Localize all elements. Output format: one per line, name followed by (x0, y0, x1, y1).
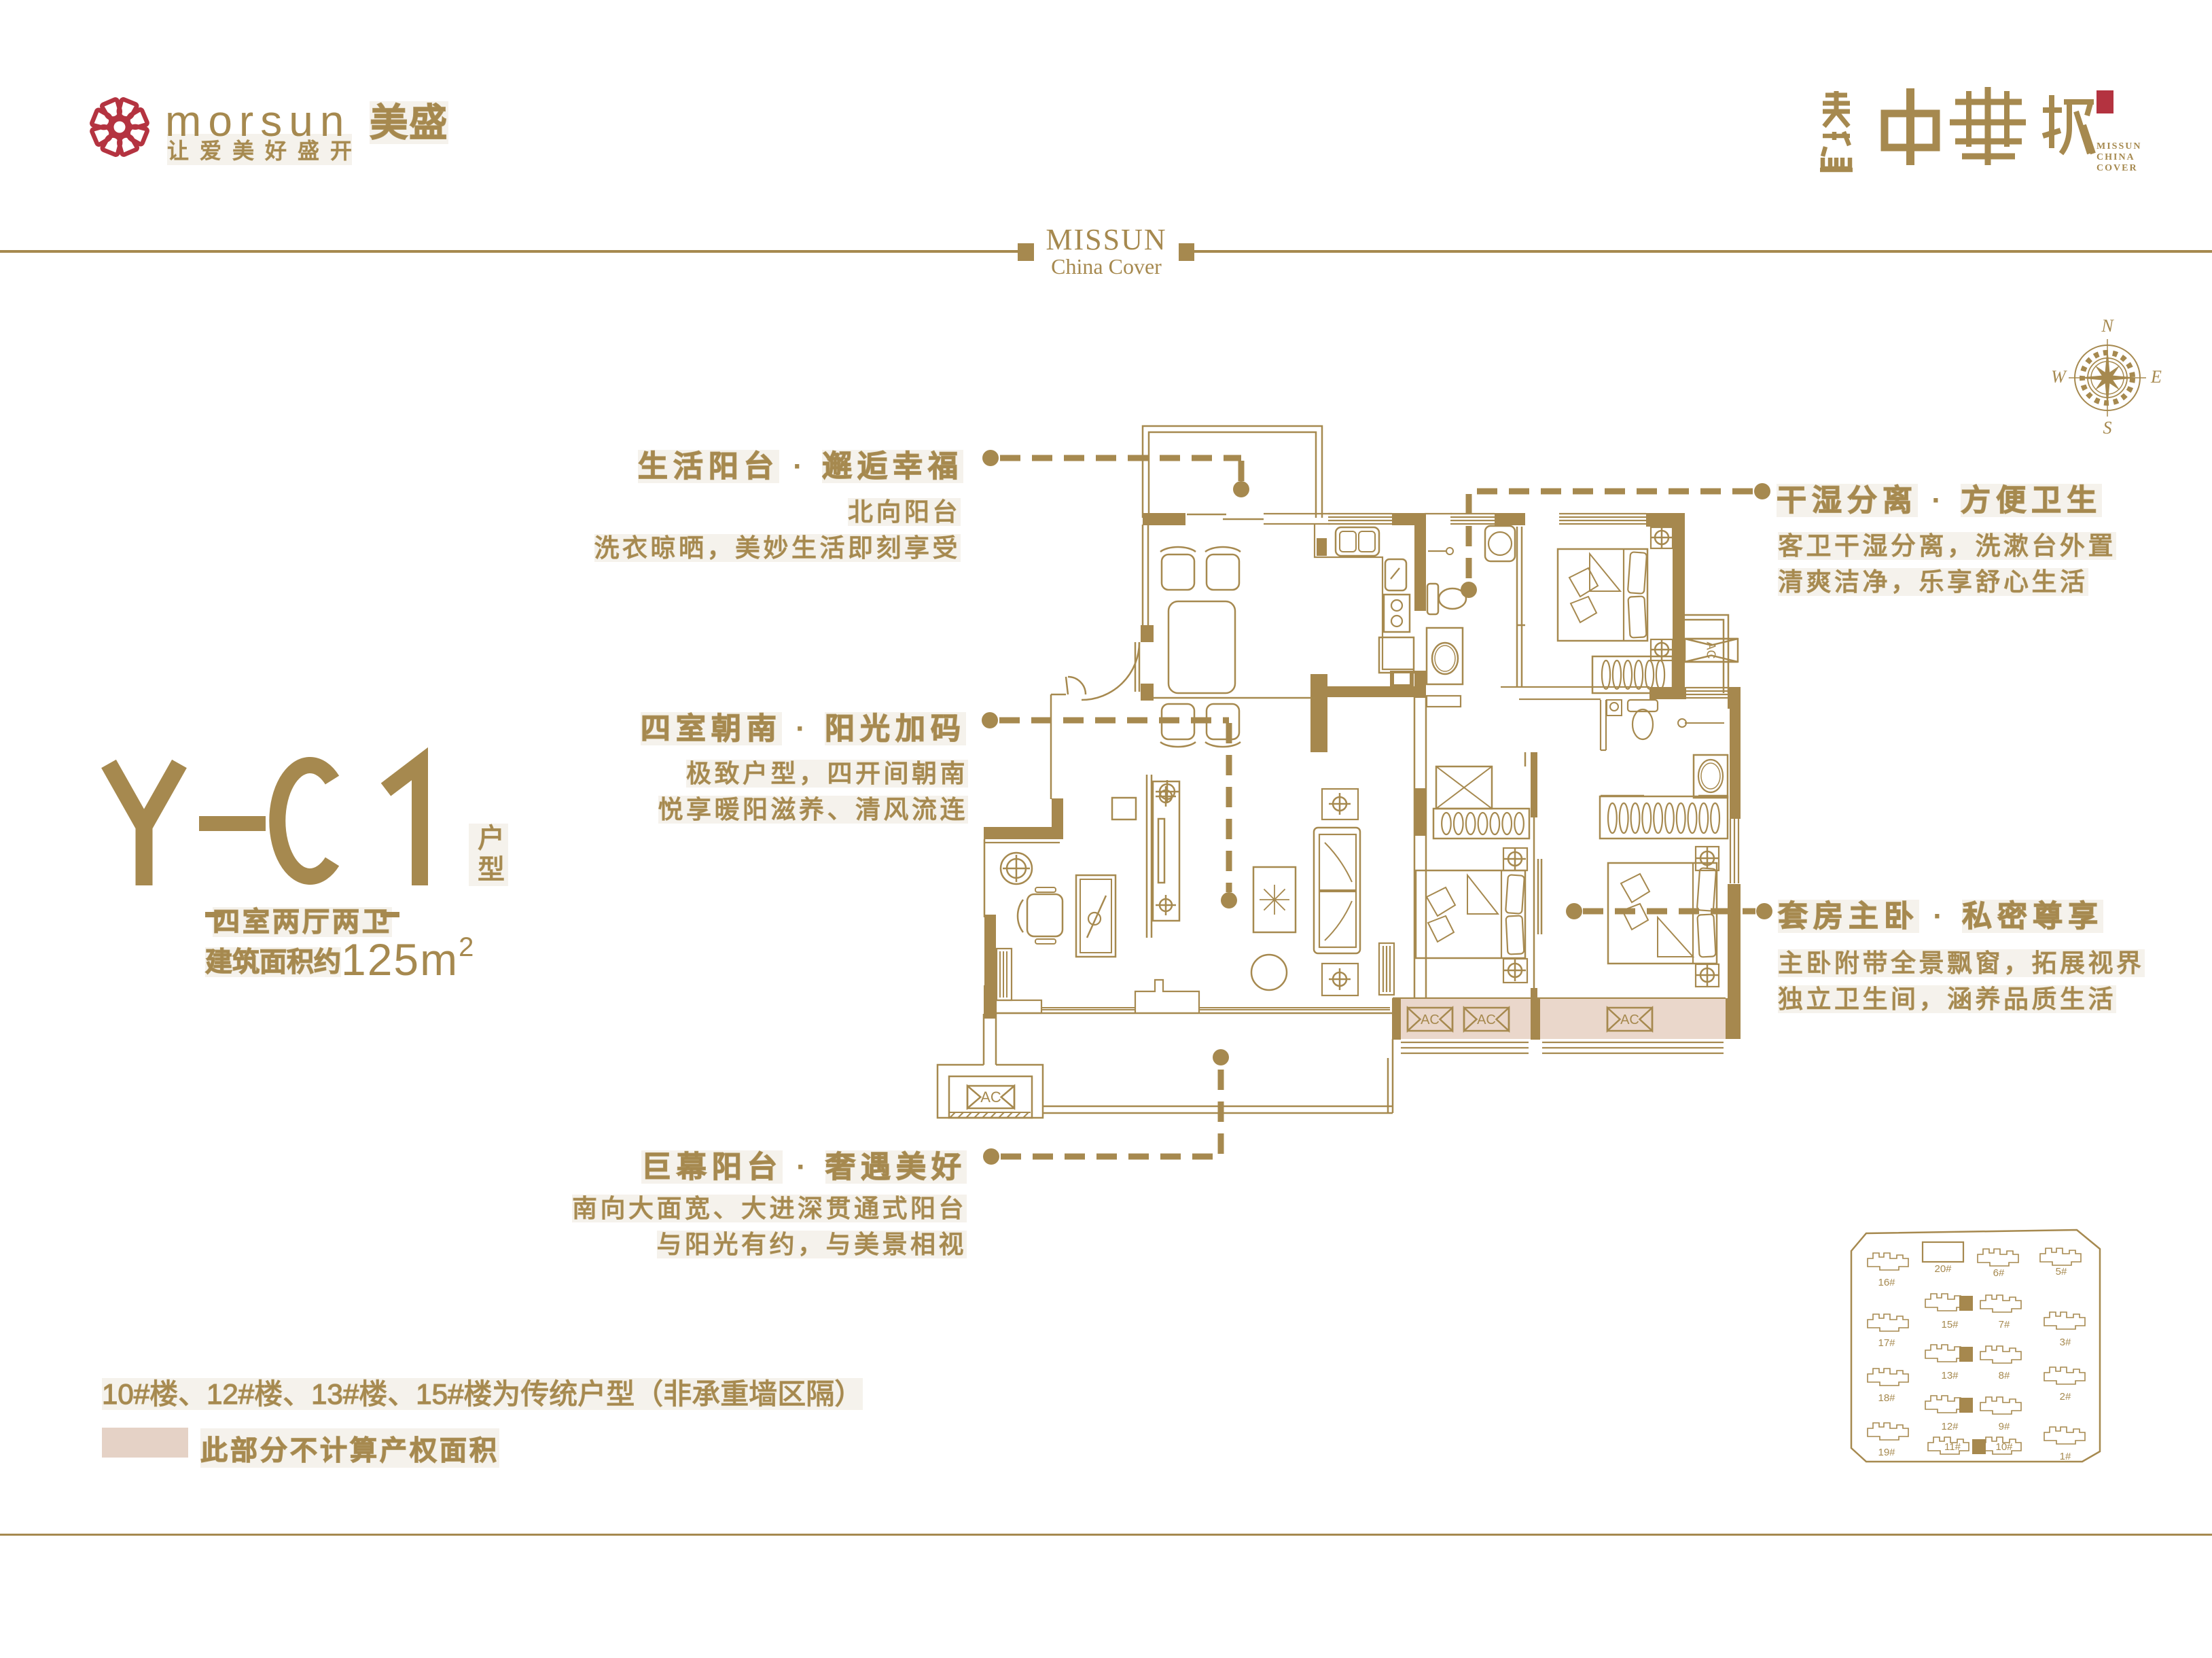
svg-text:7#: 7# (1999, 1319, 2010, 1330)
svg-text:20#: 20# (1934, 1263, 1952, 1275)
svg-text:11#: 11# (1944, 1441, 1961, 1453)
svg-text:6#: 6# (1993, 1267, 2005, 1279)
svg-text:5#: 5# (2056, 1266, 2067, 1277)
svg-text:12#: 12# (1941, 1421, 1959, 1432)
svg-text:S: S (2103, 418, 2112, 438)
svg-text:9#: 9# (1999, 1421, 2010, 1432)
svg-text:AC: AC (1421, 1012, 1440, 1027)
svg-text:AC: AC (1705, 641, 1718, 658)
svg-text:15#: 15# (1941, 1319, 1959, 1330)
svg-text:8#: 8# (1999, 1370, 2010, 1381)
svg-text:18#: 18# (1878, 1392, 1895, 1404)
svg-text:AC: AC (1620, 1012, 1639, 1027)
svg-text:AC: AC (1477, 1012, 1496, 1027)
svg-text:AC: AC (980, 1089, 1001, 1106)
svg-text:10#: 10# (1995, 1441, 2013, 1453)
svg-text:N: N (2101, 316, 2114, 336)
svg-text:19#: 19# (1878, 1447, 1895, 1458)
svg-text:W: W (2051, 367, 2067, 387)
svg-text:E: E (2150, 367, 2162, 387)
svg-text:3#: 3# (2060, 1337, 2071, 1348)
svg-text:1#: 1# (2060, 1451, 2071, 1462)
svg-text:17#: 17# (1878, 1337, 1895, 1349)
svg-text:16#: 16# (1878, 1277, 1895, 1288)
svg-text:2#: 2# (2060, 1391, 2071, 1403)
svg-text:13#: 13# (1941, 1370, 1959, 1381)
